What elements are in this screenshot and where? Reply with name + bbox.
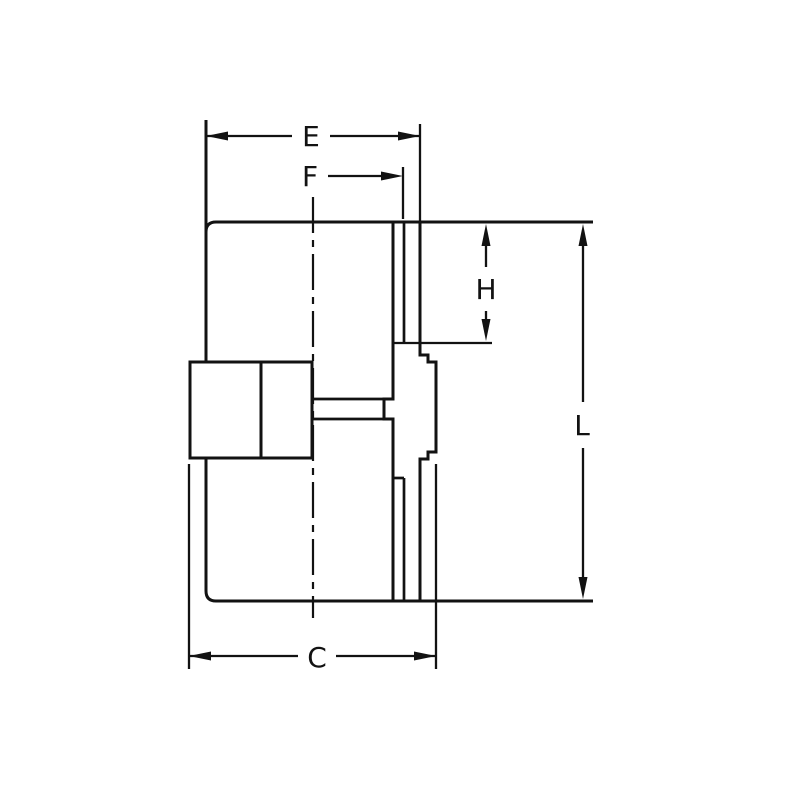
dim-label-c: C (307, 641, 327, 674)
section-wall (313, 222, 492, 601)
dim-L-arrow-down (579, 577, 588, 599)
engineering-drawing: E F H L C (0, 0, 800, 800)
dim-H: H (475, 224, 496, 341)
hex-band (190, 362, 312, 458)
dim-label-h: H (475, 273, 496, 306)
dim-L-arrow-up (579, 224, 588, 246)
section-wall-hatched (384, 222, 436, 601)
dim-C-arrow-left (189, 652, 211, 661)
dim-label-e: E (302, 120, 320, 153)
dim-H-arrow-up (482, 224, 491, 246)
dim-label-f: F (302, 160, 318, 193)
dim-label-l: L (574, 409, 590, 442)
dim-L: L (574, 224, 590, 599)
dim-H-arrow-down (482, 319, 491, 341)
drawing-canvas: E F H L C (0, 0, 800, 800)
body-left-lower-edge (206, 458, 216, 601)
dim-C-arrow-right (414, 652, 436, 661)
dim-E-arrow-left (206, 132, 228, 141)
dim-F: F (302, 160, 403, 219)
dim-E-arrow-right (398, 132, 420, 141)
internal-shoulder-lines (313, 399, 393, 419)
dim-F-arrow (381, 172, 403, 181)
